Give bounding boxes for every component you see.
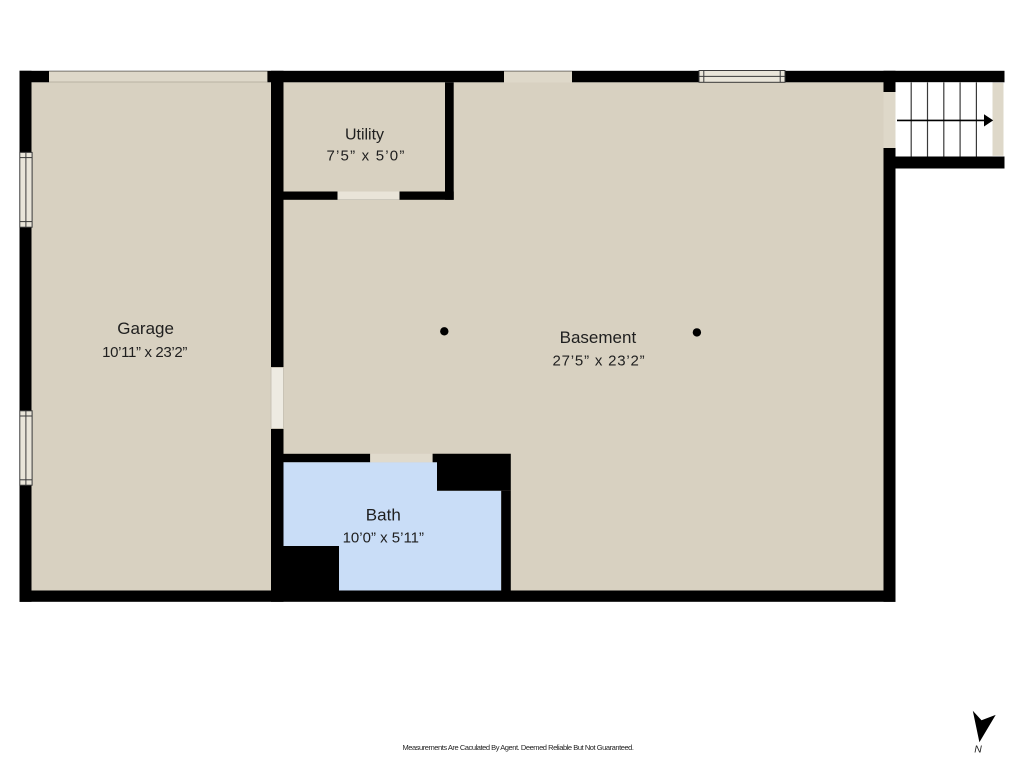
svg-text:10’0” x 5’11”: 10’0” x 5’11” — [343, 529, 424, 546]
svg-text:N: N — [974, 744, 982, 756]
svg-text:Garage: Garage — [117, 319, 174, 338]
svg-text:Utility: Utility — [345, 127, 384, 144]
svg-text:Basement: Basement — [560, 328, 637, 347]
svg-text:Bath: Bath — [366, 506, 401, 525]
svg-text:7’5” x 5’0”: 7’5” x 5’0” — [326, 148, 405, 165]
svg-text:Measurements Are Caculated By: Measurements Are Caculated By Agent. Dee… — [402, 743, 633, 752]
svg-text:27’5” x 23’2”: 27’5” x 23’2” — [553, 353, 646, 370]
svg-text:10’11” x 23’2”: 10’11” x 23’2” — [102, 344, 187, 361]
